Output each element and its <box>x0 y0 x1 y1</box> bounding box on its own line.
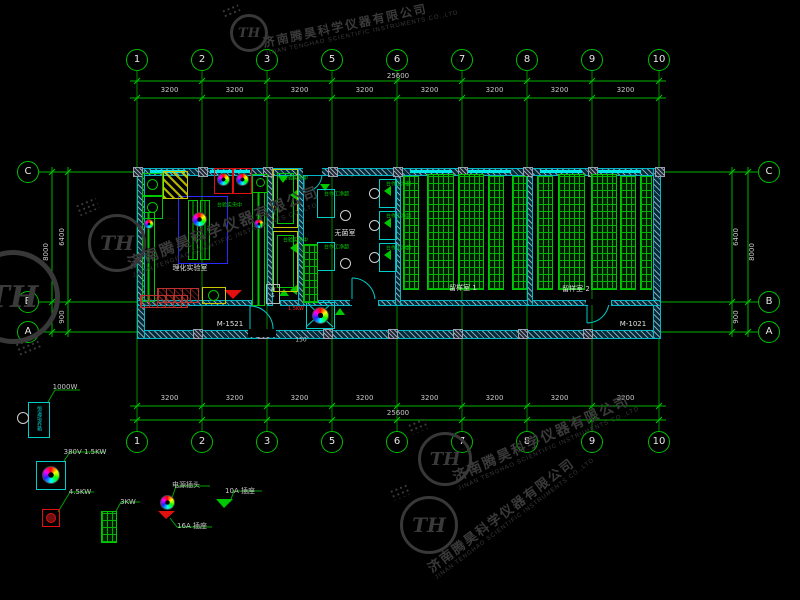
axis-bubble-top-5: 5 <box>321 49 343 71</box>
legend-heater-core <box>46 513 56 523</box>
axis-bubble-top-1: 1 <box>126 49 148 71</box>
legend-heater-label: 4.5KW <box>69 488 91 496</box>
axis-bubble-right-C: C <box>758 161 780 183</box>
arc <box>352 278 375 301</box>
window <box>596 170 641 173</box>
axis-bubble-left-C: C <box>17 161 39 183</box>
door-offset-dim: 150 <box>295 337 306 344</box>
socket-16a-symbol <box>158 511 175 519</box>
autoclave-dial <box>312 307 329 324</box>
right-dim-900: 900 <box>732 310 740 323</box>
window <box>540 170 582 173</box>
storage-rack <box>537 176 553 290</box>
light-symbol <box>335 308 345 315</box>
sink-bowl <box>147 179 158 190</box>
storage-rack <box>640 176 652 290</box>
bottom-total-dim: 25600 <box>387 409 409 417</box>
axis-bubble-top-10: 10 <box>648 49 670 71</box>
sink-bowl <box>256 178 265 187</box>
door-opening <box>350 299 377 305</box>
axis-bubble-top-7: 7 <box>451 49 473 71</box>
bench-inner <box>277 235 294 288</box>
axis-bubble-bottom-6: 6 <box>386 431 408 453</box>
fume-hood <box>163 171 188 199</box>
top-dim-1: 3200 <box>161 86 179 94</box>
right-dim-total: 8000 <box>748 243 756 261</box>
central-bench-label: 中央实验台 <box>282 237 307 242</box>
bottom-dim-4: 3200 <box>356 394 374 402</box>
door-label-right: M-1021 <box>620 320 646 328</box>
autoclave-power-label: 1.5KW <box>288 306 304 312</box>
bottom-dim-6: 3200 <box>486 394 504 402</box>
legend-rack-symbol <box>101 511 117 543</box>
pilaster <box>198 167 208 177</box>
room-label-lab: 理化实验室 <box>173 263 208 273</box>
arc <box>48 390 80 402</box>
pilaster <box>453 329 463 339</box>
clean-bench-label: 超净工作台 <box>385 213 410 218</box>
legend-autoclave-dial <box>42 466 60 484</box>
door-opening <box>303 166 322 175</box>
door-opening <box>586 299 611 305</box>
top-dim-2: 3200 <box>226 86 244 94</box>
storage-rack <box>488 176 504 290</box>
top-dim-6: 3200 <box>486 86 504 94</box>
pilaster <box>393 167 403 177</box>
room-label-sterile: 无菌室 <box>335 228 356 238</box>
legend-plug-label: 电源插头 <box>172 480 200 490</box>
pilaster <box>328 167 338 177</box>
top-dim-3: 3200 <box>291 86 309 94</box>
legend-rack-label: 3KW <box>120 498 136 506</box>
room-label-sample2: 留样室 2 <box>562 284 590 294</box>
legend-socket16-label: 16A 插座 <box>177 521 207 531</box>
left-dim-6400: 6400 <box>58 228 66 246</box>
clean-bench-label: 超净工作台 <box>323 244 348 249</box>
equipment-dial <box>217 173 230 186</box>
wall-int-8 <box>527 168 533 306</box>
legend-incubator-device: 恒温培养箱 <box>36 406 41 431</box>
drying-rack <box>303 244 318 303</box>
central-bench-label: 中央实验台 <box>282 175 307 180</box>
storage-rack <box>620 176 636 290</box>
axis-bubble-bottom-3: 3 <box>256 431 278 453</box>
window <box>410 170 452 173</box>
bottom-dim-1: 3200 <box>161 394 179 402</box>
top-dim-8: 3200 <box>617 86 635 94</box>
legend-socket10-label: 10A 插座 <box>225 486 255 496</box>
stool <box>369 188 380 199</box>
clean-bench-label: 超净工作台 <box>385 181 410 186</box>
pilaster <box>518 329 528 339</box>
sink-bowl <box>147 202 158 213</box>
left-dim-900: 900 <box>58 310 66 323</box>
axis-bubble-right-B: B <box>758 291 780 313</box>
wall-b3 <box>378 300 588 306</box>
stool <box>369 220 380 231</box>
axis-bubble-top-2: 2 <box>191 49 213 71</box>
pilaster <box>323 329 333 339</box>
storage-rack <box>591 174 617 290</box>
clean-bench-label: 超净工作台 <box>385 245 410 250</box>
room-label-sample1: 留样室 1 <box>449 283 477 293</box>
axis-bubble-bottom-5: 5 <box>321 431 343 453</box>
watermark-logo-top: TH <box>230 14 268 52</box>
pilaster <box>388 329 398 339</box>
axis-bubble-right-A: A <box>758 321 780 343</box>
axis-bubble-bottom-10: 10 <box>648 431 670 453</box>
axis-bubble-top-6: 6 <box>386 49 408 71</box>
top-total-dim: 25600 <box>387 72 409 80</box>
pilaster <box>583 329 593 339</box>
machine-dial <box>208 290 219 301</box>
corridor-lockers <box>140 295 188 308</box>
legend-incubator-label: 1000W <box>53 383 78 391</box>
ws-label: WS <box>270 287 275 299</box>
ws-box: WS <box>266 284 280 304</box>
wall-b4 <box>611 300 661 306</box>
storage-rack <box>458 174 484 290</box>
pilaster <box>193 329 203 339</box>
legend-autoclave-label: 380V 1.5KW <box>64 448 107 456</box>
socket-10a-symbol <box>216 499 233 508</box>
stool <box>369 252 380 263</box>
storage-rack <box>403 176 419 290</box>
arc <box>250 306 273 329</box>
top-dim-5: 3200 <box>421 86 439 94</box>
equipment-dot <box>144 219 154 229</box>
axis-bubble-bottom-2: 2 <box>191 431 213 453</box>
clean-bench-label: 超净工作台 <box>323 191 348 196</box>
bottom-dim-3: 3200 <box>291 394 309 402</box>
door-label-left: M-1521 <box>217 320 243 328</box>
axis-bubble-bottom-1: 1 <box>126 431 148 453</box>
storage-rack <box>558 174 585 290</box>
legend-incubator-knob <box>17 412 29 424</box>
equipment-dial <box>236 173 249 186</box>
cad-floor-plan-drawing: 11223355667788991010CCBBAA32003200320032… <box>0 0 800 600</box>
top-dim-7: 3200 <box>551 86 569 94</box>
window <box>466 170 511 173</box>
door-opening <box>248 329 276 337</box>
left-dim-total: 8000 <box>42 243 50 261</box>
storage-rack <box>427 174 454 290</box>
legend-plug-symbol <box>160 495 175 510</box>
floor-cone <box>224 290 242 299</box>
right-dim-6400: 6400 <box>732 228 740 246</box>
pilaster <box>655 167 665 177</box>
storage-rack <box>512 176 527 290</box>
stool <box>340 210 351 221</box>
stool <box>340 258 351 269</box>
axis-bubble-top-9: 9 <box>581 49 603 71</box>
central-bench-label: 中央实验台 <box>216 202 241 207</box>
bottom-dim-7: 3200 <box>551 394 569 402</box>
top-dim-4: 3200 <box>356 86 374 94</box>
legend-incubator-symbol: 恒温培养箱 <box>28 402 50 438</box>
wall-right <box>653 168 661 339</box>
bottom-dim-2: 3200 <box>226 394 244 402</box>
axis-bubble-top-8: 8 <box>516 49 538 71</box>
bottom-dim-5: 3200 <box>421 394 439 402</box>
